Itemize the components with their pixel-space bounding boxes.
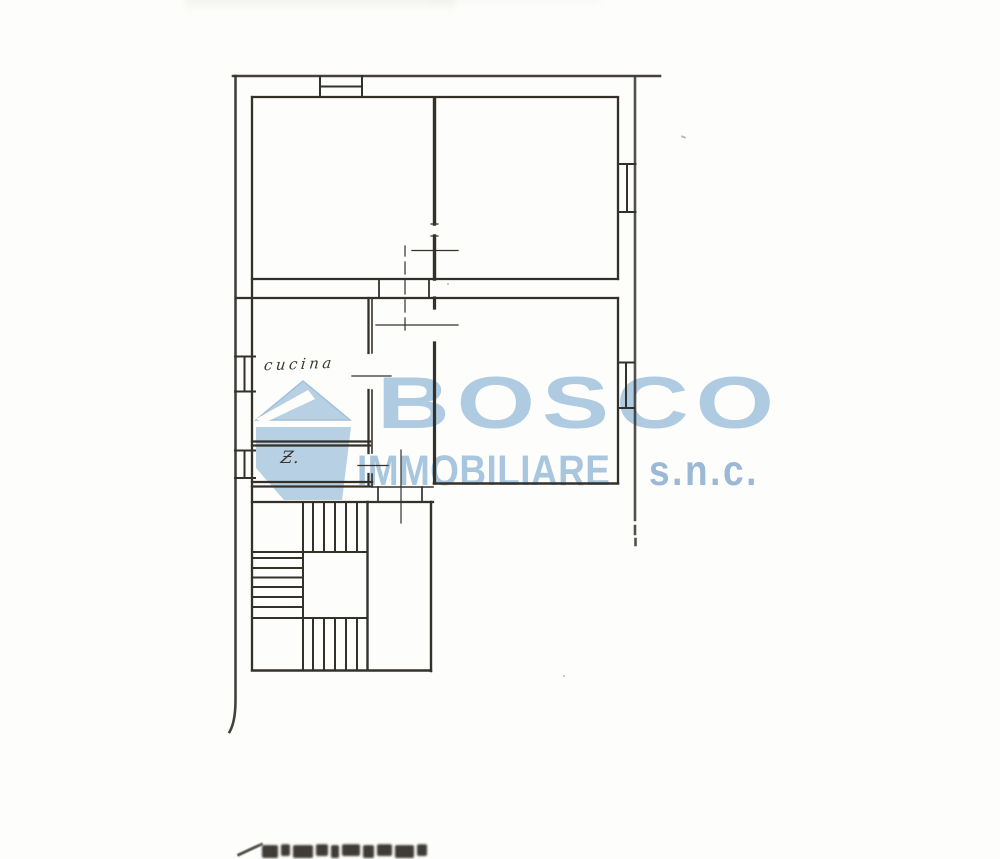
lower-cross-wall — [252, 487, 433, 502]
window-icon-top — [320, 76, 362, 97]
scan-speck — [563, 675, 565, 677]
outer-walls — [230, 76, 661, 732]
stair-steps-upper — [313, 502, 357, 552]
cross-wall-with-doorway — [236, 279, 618, 298]
scan-smudge-top — [185, 0, 455, 12]
stair-steps-lower — [313, 618, 357, 670]
stamp-fade-edge — [200, 837, 450, 846]
window-icon-right-middle — [618, 363, 634, 409]
window-icon-right-top — [618, 164, 636, 212]
stamp-text-blobs — [262, 844, 430, 859]
scanned-floorplan-page: BOSCO IMMOBILIAREs.n.c. — [0, 0, 1000, 859]
middle-rooms-walls — [252, 246, 618, 523]
scan-speck — [447, 283, 449, 285]
stair-winder-steps — [252, 558, 303, 607]
room-label-z: Ƶ. — [279, 448, 302, 468]
room-label-kitchen: cucina — [263, 354, 336, 375]
illegible-stamp — [200, 837, 450, 859]
floorplan-drawing — [0, 0, 1000, 859]
scan-smudge-top-right — [430, 0, 600, 7]
staircase — [252, 502, 431, 671]
